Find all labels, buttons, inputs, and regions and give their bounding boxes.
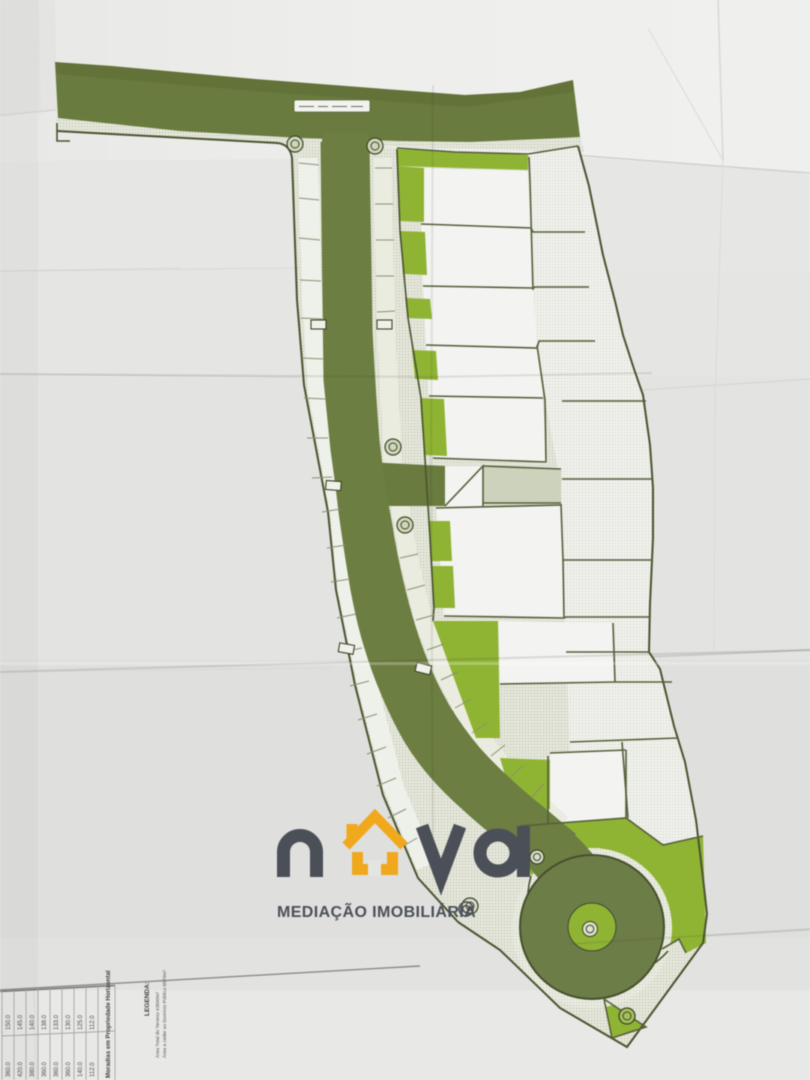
- svg-text:138.0: 138.0: [42, 1014, 48, 1030]
- svg-text:380.0: 380.0: [30, 1061, 36, 1077]
- svg-text:420.0: 420.0: [18, 1061, 24, 1077]
- svg-text:145.0: 145.0: [18, 1014, 24, 1030]
- svg-text:150.0: 150.0: [6, 1014, 12, 1030]
- svg-text:140.0: 140.0: [78, 1061, 84, 1077]
- svg-text:Área Total do Terreno: Área Total do Terreno 43500m²: [154, 992, 161, 1058]
- svg-text:Área a ceder ao Domínio Públic: Área a ceder ao Domínio Público 6570m²: [161, 970, 168, 1058]
- svg-text:360.0: 360.0: [42, 1061, 48, 1077]
- svg-text:112.0: 112.0: [90, 1062, 96, 1077]
- svg-text:Moradias em Propriedade Horizo: Moradias em Propriedade Horizontal: [105, 970, 112, 1078]
- svg-text:360.0: 360.0: [54, 1061, 60, 1077]
- svg-text:140.0: 140.0: [30, 1014, 36, 1030]
- svg-text:360.0: 360.0: [6, 1061, 12, 1077]
- svg-text:112.0: 112.0: [90, 1015, 96, 1030]
- svg-text:130.0: 130.0: [66, 1014, 72, 1030]
- svg-text:LEGENDA:: LEGENDA:: [144, 982, 151, 1016]
- svg-text:MEDIAÇÃO IMOBILIÁRIA: MEDIAÇÃO IMOBILIÁRIA: [277, 901, 476, 921]
- svg-text:360.0: 360.0: [66, 1061, 72, 1077]
- svg-text:133.0: 133.0: [54, 1014, 60, 1030]
- svg-text:125.0: 125.0: [78, 1014, 84, 1030]
